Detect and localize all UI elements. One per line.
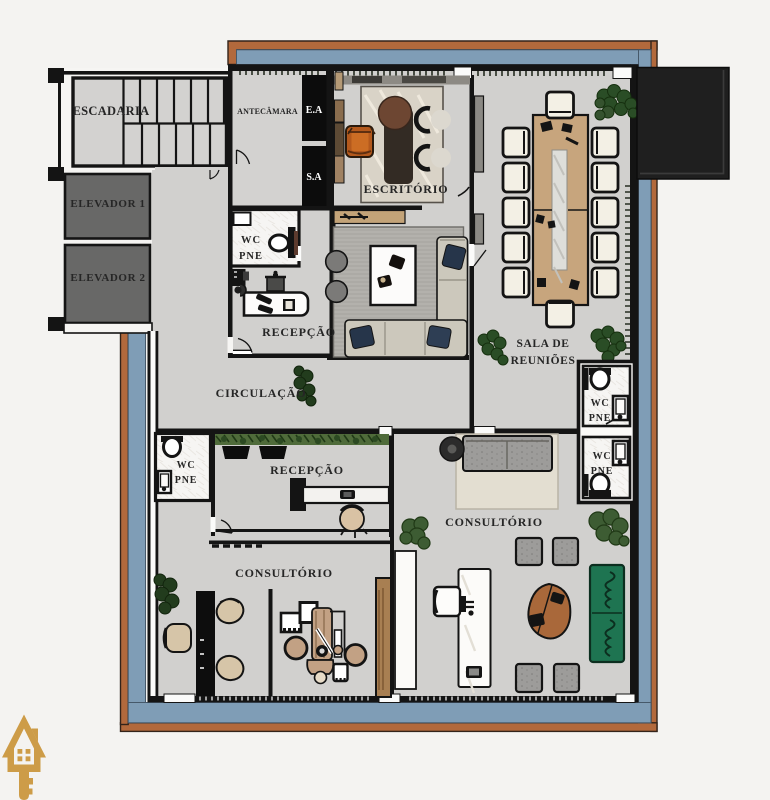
svg-text:ANTECÂMARA: ANTECÂMARA (237, 106, 298, 116)
svg-text:PNE: PNE (239, 251, 263, 262)
svg-text:ELEVADOR 2: ELEVADOR 2 (70, 272, 145, 284)
svg-text:CONSULTÓRIO: CONSULTÓRIO (235, 566, 333, 580)
svg-text:RECEPÇÃO: RECEPÇÃO (270, 463, 344, 477)
svg-text:WC: WC (177, 460, 196, 471)
svg-text:ELEVADOR 1: ELEVADOR 1 (70, 198, 145, 210)
svg-text:PNE: PNE (591, 466, 613, 477)
svg-text:E.A: E.A (306, 105, 323, 116)
svg-text:WC: WC (593, 451, 612, 462)
svg-text:PNE: PNE (175, 475, 197, 486)
svg-text:SALA DE: SALA DE (516, 338, 569, 350)
svg-text:RECEPÇÃO: RECEPÇÃO (262, 325, 336, 339)
svg-text:S.A: S.A (306, 172, 322, 183)
svg-text:REUNIÕES: REUNIÕES (511, 353, 576, 367)
svg-text:CIRCULAÇÃO: CIRCULAÇÃO (216, 386, 307, 400)
svg-text:PNE: PNE (589, 413, 611, 424)
svg-text:WC: WC (241, 235, 261, 246)
svg-text:ESCADARIA: ESCADARIA (72, 104, 149, 118)
svg-text:ESCRITÓRIO: ESCRITÓRIO (364, 182, 449, 196)
svg-text:WC: WC (591, 398, 610, 409)
svg-text:CONSULTÓRIO: CONSULTÓRIO (445, 515, 543, 529)
